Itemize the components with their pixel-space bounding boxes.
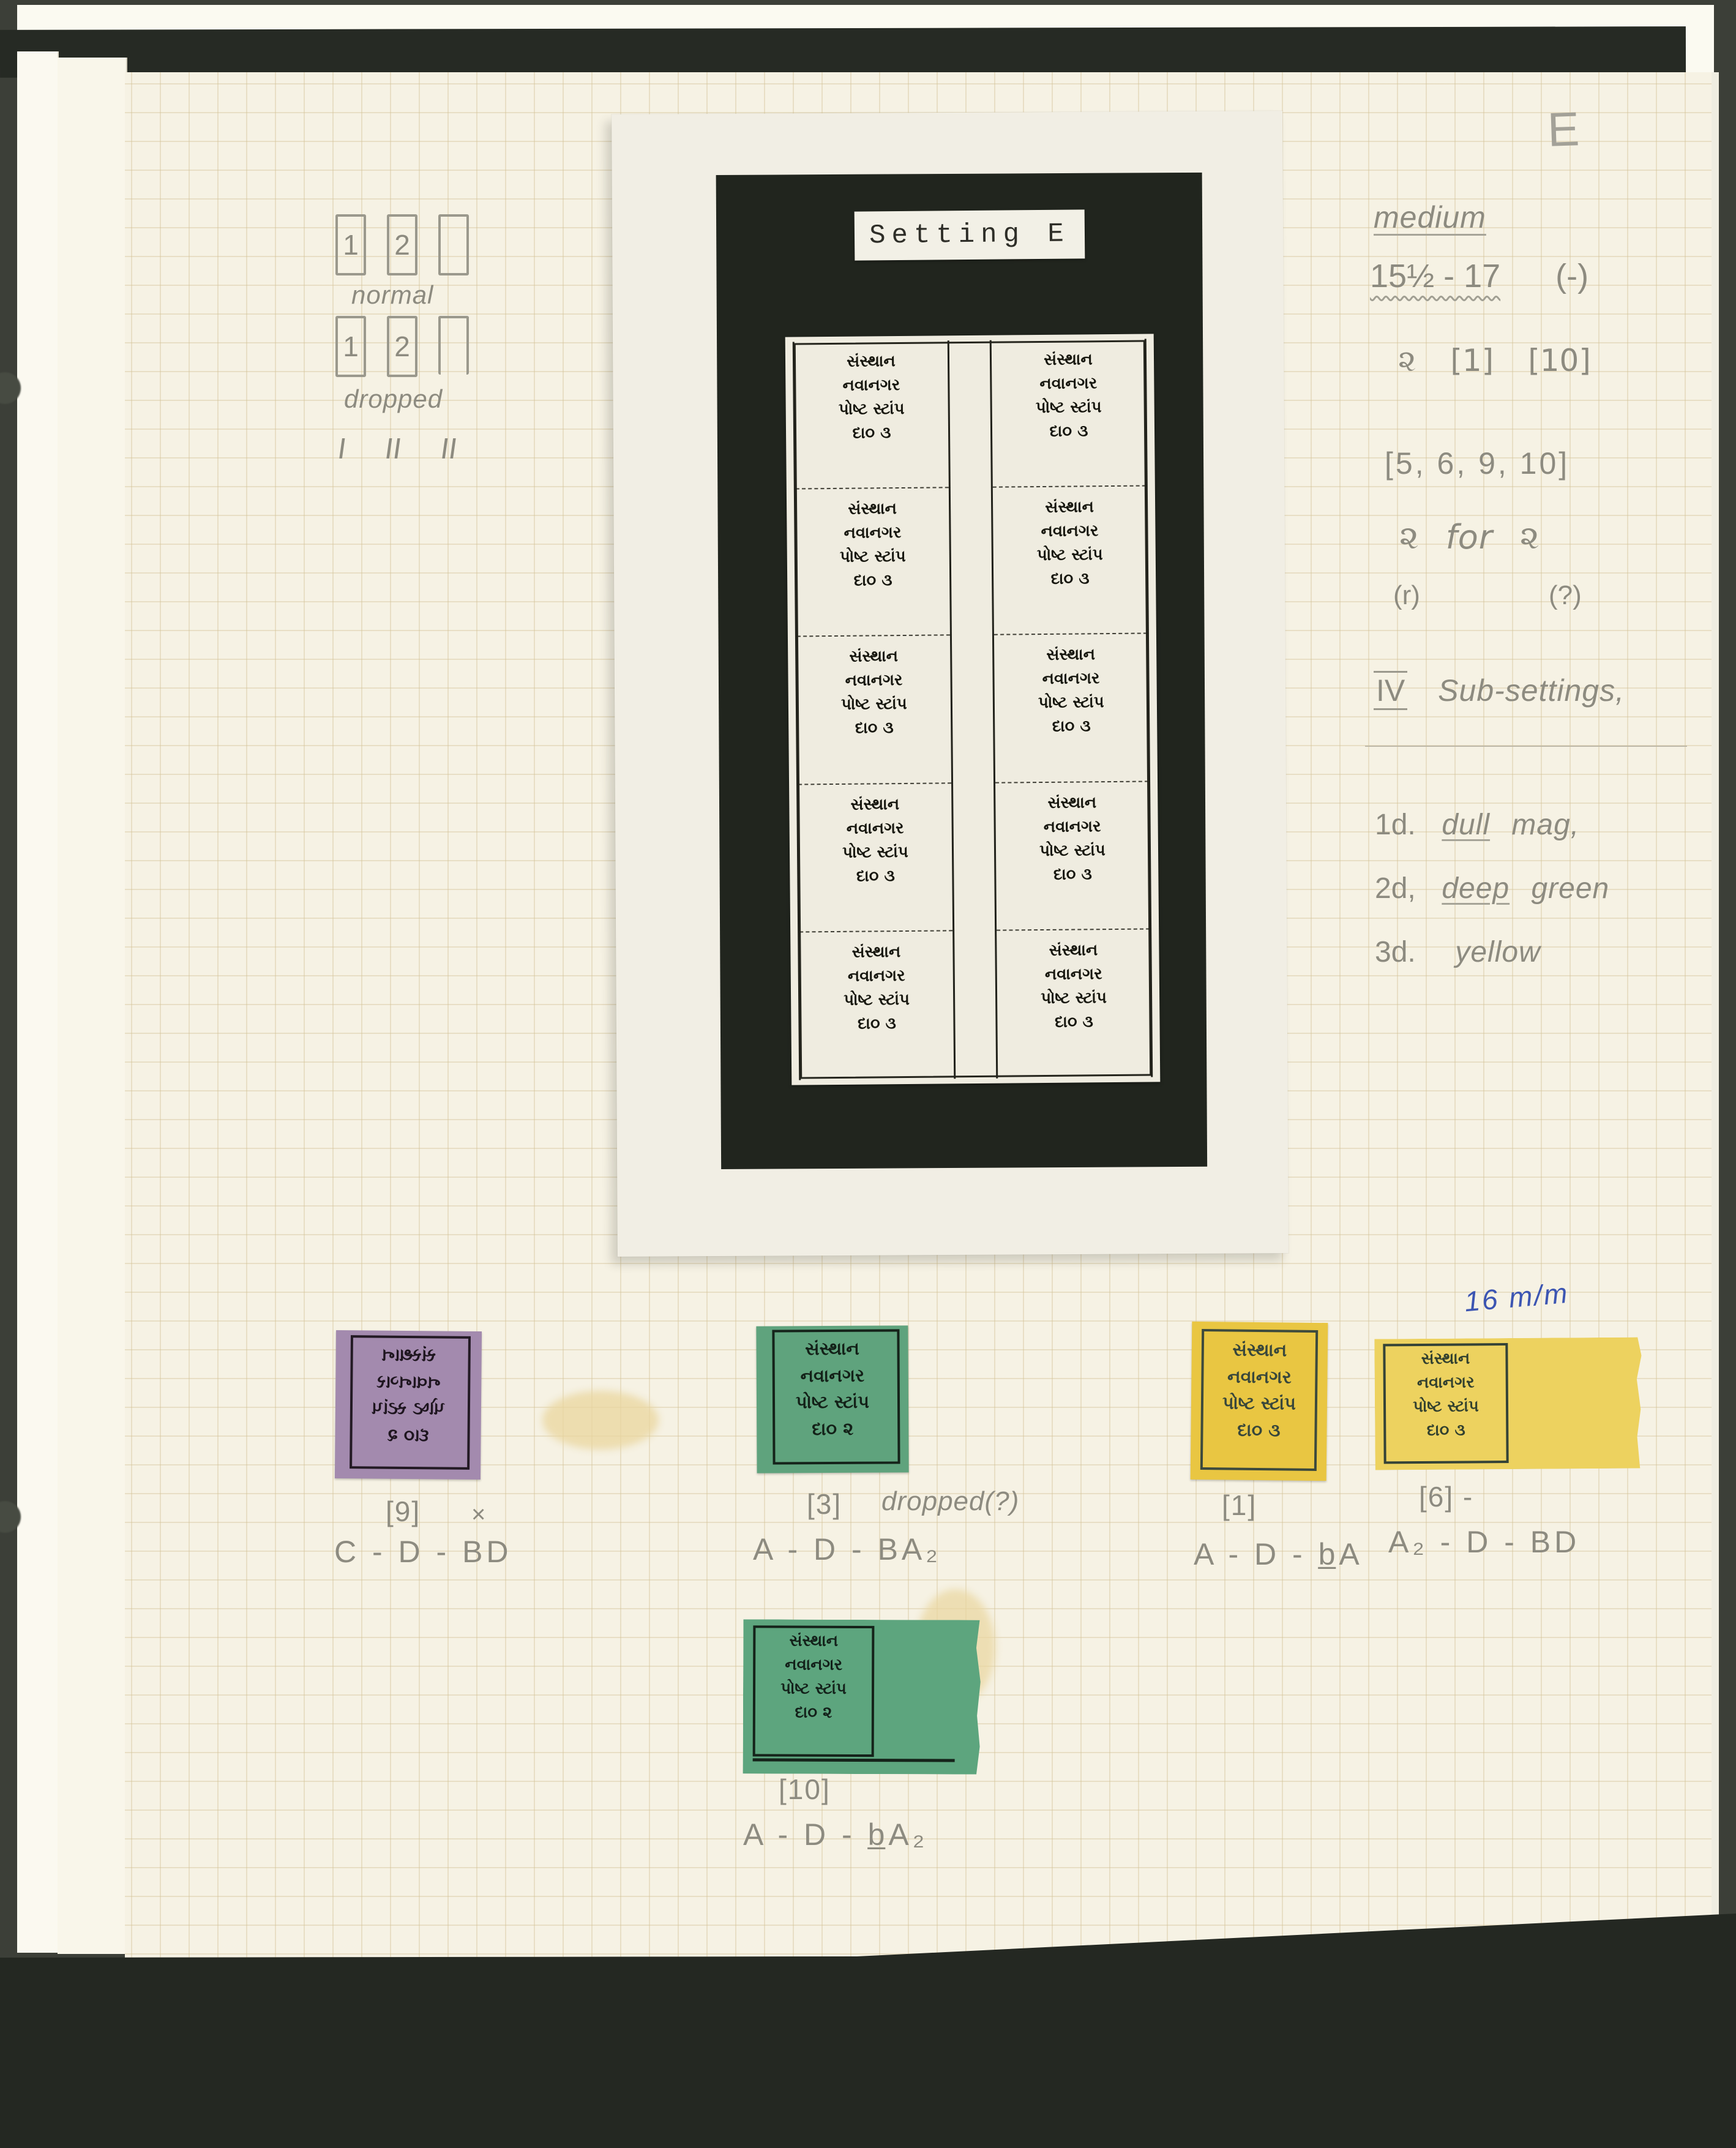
sketch-frame-label: 1 <box>343 330 359 363</box>
sketch-row-normal: 1 2 normal <box>335 214 469 310</box>
sheet-column-right: સંસ્થાનનવાનગરપોષ્ટ સ્ટાંપદા૦ ૩ સંસ્થાનનવ… <box>990 339 1153 1079</box>
note-refs: ૨ [1] [10] <box>1398 343 1591 379</box>
stamp-line: નવાનગર <box>335 1368 481 1396</box>
stamp-text: સંસ્થાન નવાનગર પોષ્ટ સ્ટાંપ દા૦ ૩ <box>1191 1336 1328 1444</box>
caption-pos10: [10] <box>779 1773 831 1806</box>
stamp-line: નવાનગર <box>795 373 948 398</box>
sketch-frame-label: 1 <box>343 228 359 261</box>
formula-pos1: A - D - b̲A <box>1194 1536 1363 1572</box>
stamp-line: સંસ્થાન <box>799 940 952 965</box>
page-stack-edge-inner <box>58 58 127 1954</box>
stamp-line: દા૦ ૨ <box>753 1701 874 1725</box>
stamp-line: નવાનગર <box>997 962 1150 987</box>
stamp-line: નવાનગર <box>753 1653 874 1677</box>
stamp-line: પોષ્ટ સ્ટાંપ <box>1191 1390 1327 1418</box>
photo-stamp-cell: સંસ્થાનનવાનગરપોષ્ટ સ્ટાંપદા૦ ૩ <box>799 931 954 1080</box>
stamp-line: પોષ્ટ સ્ટાંપ <box>335 1394 481 1423</box>
stamp-line: નવાનગર <box>996 814 1149 839</box>
tally-mark: I <box>335 432 348 466</box>
item-number: 2d, <box>1375 857 1434 921</box>
stamp-line: દા૦ ૩ <box>796 569 949 594</box>
sketch-caption-normal: normal <box>351 280 469 310</box>
stamp-line: નવાનગર <box>992 372 1145 397</box>
formula-pos3: A - D - BA₂ <box>753 1532 941 1567</box>
stamp-line: પોષ્ટ સ્ટાંપ <box>796 545 949 570</box>
stamp-line: નવાનગર <box>799 816 952 841</box>
caption-pos3: [3] <box>807 1488 842 1521</box>
sketch-frame <box>438 214 469 275</box>
sketch-frame: 1 <box>335 316 366 377</box>
stamp-line: સંસ્થાન <box>993 495 1146 520</box>
stamp-line: સંસ્થાન <box>796 497 949 522</box>
note-gauge: 15½ - 17 (-) <box>1370 257 1588 295</box>
stamp-line: દા૦ ૩ <box>997 1009 1150 1035</box>
photo-stamp-cell: સંસ્થાનનવાનગરપોષ્ટ સ્ટાંપદા૦ ૩ <box>997 929 1151 1078</box>
caption-pos9-mark: × <box>471 1501 487 1529</box>
stamp-line: પોષ્ટ સ્ટાંપ <box>753 1677 874 1701</box>
photo-stamp-cell: સંસ્થાનનવાનગરપોષ્ટ સ્ટાંપદા૦ ૩ <box>992 339 1146 488</box>
stamp-text: સંસ્થાન નવાનગર પોષ્ટ સ્ટાંપ દા૦ ૩ <box>1383 1347 1508 1443</box>
stamp-line: પોષ્ટ સ્ટાંપ <box>992 395 1145 421</box>
photo-stamp-cell: સંસ્થાનનવાનગરપોષ્ટ સ્ટાંપદા૦ ૩ <box>994 634 1148 783</box>
stamp-line: પોષ્ટ સ્ટાંપ <box>997 986 1150 1011</box>
stamp-line: નવાનગર <box>757 1362 908 1390</box>
item-number: 1d. <box>1375 793 1434 857</box>
stamp-line: નવાનગર <box>993 519 1146 544</box>
stamp-text: સંસ્થાન નવાનગર પોષ્ટ સ્ટાંપ દા૦ ૨ <box>756 1335 908 1442</box>
stamp-line: સંસ્થાન <box>795 349 948 374</box>
item-rest: yellow <box>1455 936 1540 968</box>
tally-marks: I II II <box>338 432 457 466</box>
sheet-column-left: સંસ્થાનનવાનગરપોષ્ટ સ્ટાંપદા૦ ૩ સંસ્થાનનવ… <box>793 340 956 1080</box>
item-emphasis: deep <box>1442 872 1510 905</box>
ref-position-10: [10] <box>1528 343 1591 379</box>
sketch-frame: 2 <box>387 316 417 377</box>
swap-sub-right: (?) <box>1549 580 1582 611</box>
ref-position-1: [1] <box>1450 343 1494 379</box>
sketch-frame-open <box>438 316 469 375</box>
item-number: 3d. <box>1375 921 1434 984</box>
stamp-magenta-pos9: સંસ્થાન નવાનગર પોષ્ટ સ્ટાંપ દા૦ ૨ <box>335 1330 482 1480</box>
photo-stamp-cell: સંસ્થાનનવાનગરપોષ્ટ સ્ટાંપદા૦ ૩ <box>995 782 1150 930</box>
item-rest: mag, <box>1511 809 1579 841</box>
sketch-row-dropped: 1 2 dropped <box>335 316 469 414</box>
stamp-line: પોષ્ટ સ્ટાંપ <box>995 690 1148 716</box>
black-backing-strip-top <box>0 26 1686 78</box>
sketch-caption-dropped: dropped <box>344 384 469 414</box>
stamp-line: પોષ્ટ સ્ટાંપ <box>1383 1394 1508 1419</box>
stamp-line: નવાનગર <box>800 964 953 989</box>
stamp-line: સંસ્થાન <box>1192 1336 1328 1364</box>
stamp-line: નવાનગર <box>1191 1363 1327 1391</box>
caption-pos6: [6] - <box>1419 1480 1473 1513</box>
caption-pos1: [1] <box>1222 1489 1257 1522</box>
sketch-frame-label: 2 <box>394 330 410 363</box>
item-emphasis: dull <box>1442 809 1490 841</box>
stamp-line: સંસ્થાન <box>992 348 1145 373</box>
sketch-frame-label: 2 <box>394 228 410 261</box>
swap-sub-left: (r) <box>1393 580 1420 611</box>
stamp-line: પોષ્ટ સ્ટાંપ <box>795 397 948 422</box>
tally-mark: II <box>438 432 459 466</box>
stamp-line: દા૦ ૩ <box>1191 1416 1326 1444</box>
sketch-frame: 1 <box>335 214 366 275</box>
photo-stamp-cell: સંસ્થાનનવાનગરપોષ્ટ સ્ટાંપદા૦ ૩ <box>796 488 950 637</box>
stamp-line: દા૦ ૩ <box>799 864 952 889</box>
stamp-line: પોષ્ટ સ્ટાંપ <box>757 1388 908 1416</box>
stamp-line: દા૦ ૩ <box>800 1011 953 1036</box>
stamp-line: સંસ્થાન <box>995 790 1148 815</box>
swap-right-glyph: ૨ <box>1520 518 1540 557</box>
caption-pos3-note: dropped(?) <box>881 1486 1019 1517</box>
note-swap: ૨ for ૨ <box>1399 518 1540 557</box>
stamp-line: પોષ્ટ સ્ટાંપ <box>996 838 1149 863</box>
photo-stamp-cell: સંસ્થાનનવાનગરપોષ્ટ સ્ટાંપદા૦ ૩ <box>798 784 952 932</box>
stamp-yellow-pos6: સંસ્થાન નવાનગર પોષ્ટ સ્ટાંપ દા૦ ૩ <box>1374 1337 1642 1470</box>
section-title: Sub-settings, <box>1438 673 1625 708</box>
paper-stain <box>542 1391 659 1450</box>
note-medium-text: medium <box>1374 200 1486 234</box>
gujarati-glyph: ૨ <box>1398 343 1416 379</box>
stamp-line: સંસ્થાન <box>336 1341 482 1369</box>
album-page-scan: E 1 2 normal 1 2 dropped I II II Setting… <box>0 0 1736 2148</box>
stamp-line: પોષ્ટ સ્ટાંપ <box>798 692 951 717</box>
subsettings-list: 1d. dull mag, 2d, deep green 3d. yellow <box>1375 793 1609 984</box>
note-positions: [5, 6, 9, 10] <box>1385 446 1570 481</box>
stamp-line: દા૦ ૩ <box>795 421 948 446</box>
stamp-line: સંસ્થાન <box>798 792 951 817</box>
reconstruction-sheet: સંસ્થાનનવાનગરપોષ્ટ સ્ટાંપદા૦ ૩ સંસ્થાનનવ… <box>785 334 1161 1085</box>
stamp-line: નવાનગર <box>797 668 950 694</box>
section-numeral: IV <box>1374 671 1407 710</box>
caption-pos9: [9] <box>386 1495 421 1528</box>
stamp-line: પોષ્ટ સ્ટાંપ <box>799 840 952 865</box>
subsetting-item: 2d, deep green <box>1375 857 1609 921</box>
subsetting-item: 1d. dull mag, <box>1375 793 1609 857</box>
stamp-line: સંસ્થાન <box>797 645 950 670</box>
stamp-line: દા૦ ૩ <box>1383 1418 1508 1443</box>
note-subsettings-heading: IV Sub-settings, <box>1374 671 1625 710</box>
stamp-green-pos10: સંસ્થાન નવાનગર પોષ્ટ સ્ટાંપ દા૦ ૨ <box>743 1619 982 1774</box>
stamp-line: સંસ્થાન <box>753 1629 874 1653</box>
stamp-green-pos3: સંસ્થાન નવાનગર પોષ્ટ સ્ટાંપ દા૦ ૨ <box>756 1325 908 1473</box>
setting-label-slip: Setting E <box>855 209 1085 260</box>
subsetting-item: 3d. yellow <box>1375 921 1609 984</box>
stamp-line: નવાનગર <box>1383 1371 1508 1395</box>
stamp-line: નવાનગર <box>994 667 1147 692</box>
item-rest: green <box>1531 872 1609 905</box>
gauge-value: 15½ - 17 <box>1370 257 1500 295</box>
photo-stamp-cell: સંસ્થાનનવાનગરપોષ્ટ સ્ટાંપદા૦ ૩ <box>795 340 949 489</box>
stamp-line: દા૦ ૩ <box>992 419 1145 444</box>
stamp-line: દા૦ ૩ <box>993 567 1147 592</box>
formula-pos10: A - D - b̲A₂ <box>743 1817 928 1852</box>
stamp-yellow-pos1: સંસ્થાન નવાનગર પોષ્ટ સ્ટાંપ દા૦ ૩ <box>1191 1322 1328 1481</box>
photo-stamp-cell: સંસ્થાનનવાનગરપોષ્ટ સ્ટાંપદા૦ ૩ <box>797 636 951 785</box>
sketch-frame: 2 <box>387 214 417 275</box>
stamp-line: દા૦ ૩ <box>996 862 1149 887</box>
note-swap-subs: (r) (?) <box>1393 580 1582 611</box>
stamp-text: સંસ્થાન નવાનગર પોષ્ટ સ્ટાંપ દા૦ ૨ <box>753 1629 875 1725</box>
page-stack-edge-outer <box>17 51 59 1953</box>
swap-word: for <box>1446 518 1493 557</box>
stamp-line: નવાનગર <box>796 521 949 546</box>
photo-stamp-cell: સંસ્થાનનવાનગરપોષ્ટ સ્ટાંપદા૦ ૩ <box>993 487 1147 635</box>
stamp-line: દા૦ ૩ <box>995 714 1148 739</box>
formula-pos9: C - D - BD <box>334 1534 512 1570</box>
stamp-line: પોષ્ટ સ્ટાંપ <box>800 987 953 1012</box>
stamp-line: સંસ્થાન <box>994 643 1147 668</box>
stamp-line: સંસ્થાન <box>756 1335 908 1363</box>
gauge-suffix: (-) <box>1555 257 1588 295</box>
stamp-text-mirrored: સંસ્થાન નવાનગર પોષ્ટ સ્ટાંપ દા૦ ૨ <box>335 1341 482 1449</box>
stamp-line: દા૦ ૨ <box>335 1421 481 1449</box>
formula-pos6: A₂ - D - BD <box>1388 1524 1580 1560</box>
section-rule <box>1365 746 1687 747</box>
stamp-line: દા૦ ૩ <box>798 716 951 741</box>
note-medium: medium <box>1374 200 1486 235</box>
stamp-baseline-extension <box>753 1758 955 1762</box>
swap-left-glyph: ૨ <box>1399 518 1419 557</box>
stamp-line: સંસ્થાન <box>997 938 1150 963</box>
stamp-line: પોષ્ટ સ્ટાંપ <box>993 543 1147 568</box>
stamp-line: દા૦ ૨ <box>757 1415 908 1443</box>
stamp-line: સંસ્થાન <box>1383 1347 1508 1371</box>
setting-label-text: Setting E <box>869 219 1070 252</box>
page-corner-letter: E <box>1546 101 1581 158</box>
tally-mark: II <box>383 432 403 466</box>
